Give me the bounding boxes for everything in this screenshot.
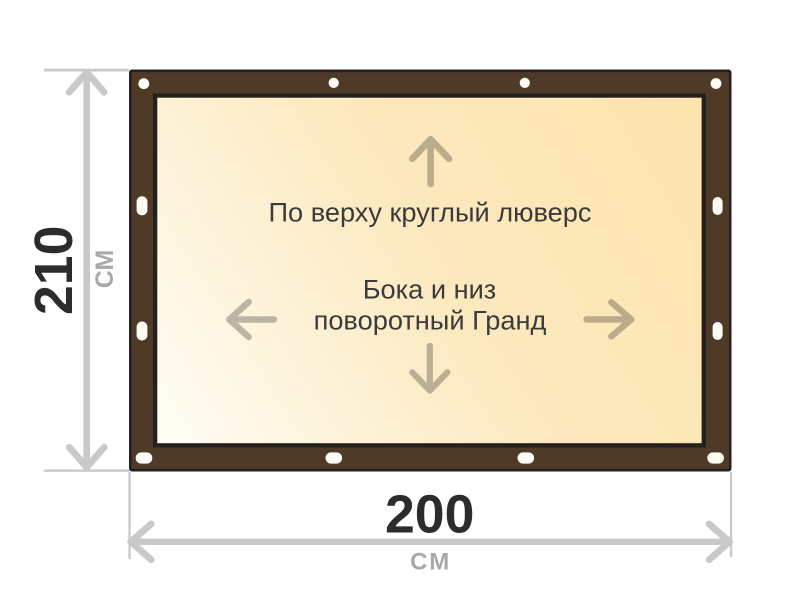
svg-text:поворотный Гранд: поворотный Гранд [314,305,547,336]
svg-text:Бока и низ: Бока и низ [363,274,497,305]
svg-text:По верху круглый люверс: По верху круглый люверс [268,197,591,228]
svg-text:СМ: СМ [91,250,119,289]
svg-text:СМ: СМ [410,549,451,576]
svg-text:210: 210 [24,226,84,315]
svg-text:200: 200 [385,485,474,545]
